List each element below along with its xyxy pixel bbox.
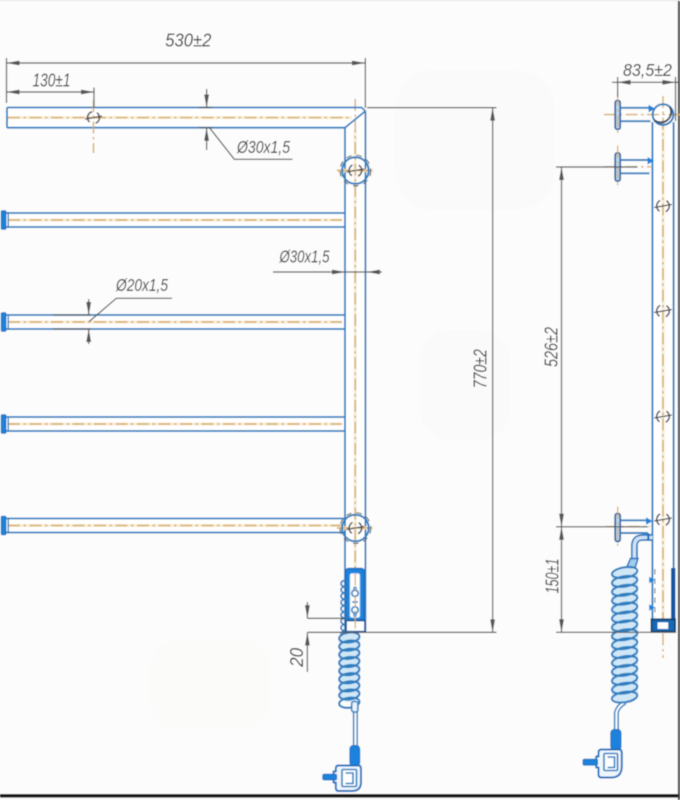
svg-text:526±2: 526±2: [541, 327, 561, 367]
svg-text:83,5±2: 83,5±2: [623, 60, 672, 80]
svg-text:130±1: 130±1: [33, 71, 71, 91]
svg-text:770±2: 770±2: [470, 349, 490, 388]
svg-text:150±1: 150±1: [543, 559, 563, 594]
svg-text:Ø20x1,5: Ø20x1,5: [115, 275, 168, 295]
svg-text:Ø30x1,5: Ø30x1,5: [279, 247, 330, 267]
svg-text:20: 20: [287, 648, 307, 668]
svg-text:530±2: 530±2: [165, 31, 211, 51]
svg-text:Ø30x1,5: Ø30x1,5: [236, 137, 290, 157]
